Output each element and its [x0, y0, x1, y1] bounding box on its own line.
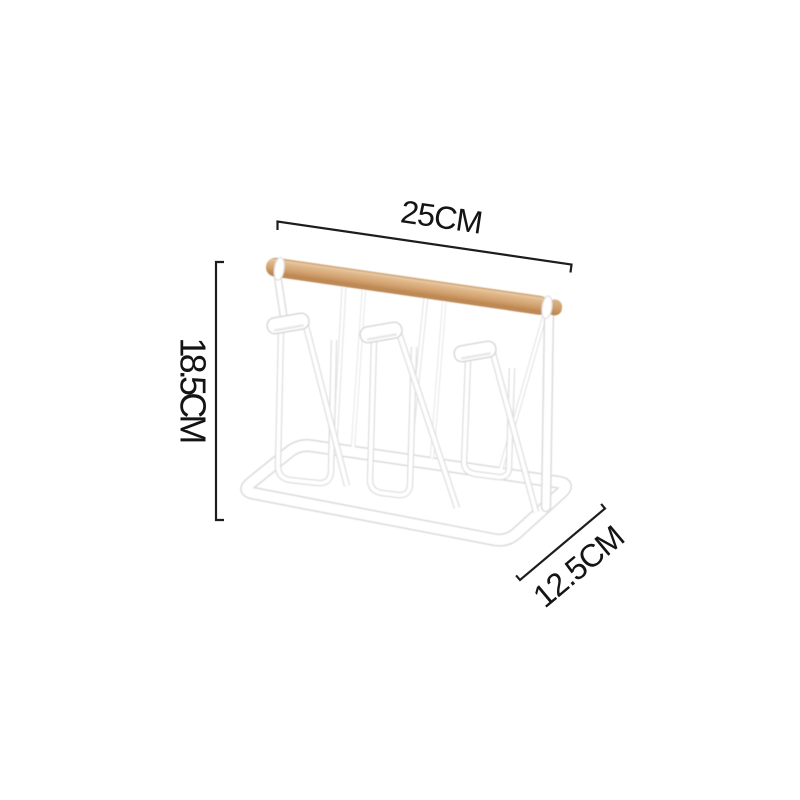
svg-text:18.5CM: 18.5CM: [172, 337, 213, 442]
